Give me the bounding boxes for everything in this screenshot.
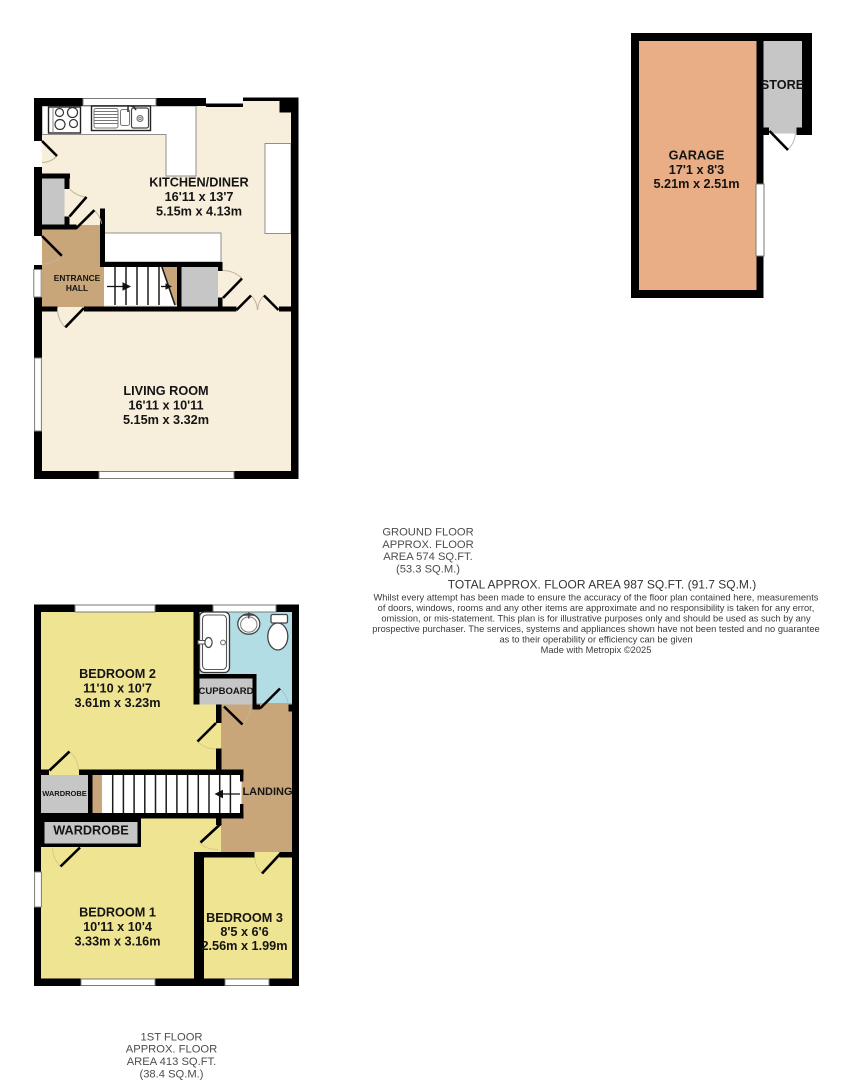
svg-text:Made with Metropix ©2025: Made with Metropix ©2025 [541,645,652,655]
svg-text:2.56m x 1.99m: 2.56m x 1.99m [201,939,287,953]
svg-text:Whilst every attempt has been: Whilst every attempt has been made to en… [374,593,819,603]
svg-text:APPROX. FLOOR: APPROX. FLOOR [382,539,473,551]
svg-text:LANDING: LANDING [242,786,292,798]
svg-text:of doors, windows, rooms and a: of doors, windows, rooms and any other i… [378,603,815,613]
svg-text:CUPBOARD: CUPBOARD [199,686,254,697]
svg-text:KITCHEN/DINER: KITCHEN/DINER [149,176,248,190]
svg-text:prospective purchaser. The ser: prospective purchaser. The services, sys… [372,624,819,634]
svg-text:WARDROBE: WARDROBE [53,824,128,838]
svg-text:ENTRANCE: ENTRANCE [54,273,101,283]
svg-text:BEDROOM 2: BEDROOM 2 [79,667,156,681]
svg-text:HALL: HALL [66,283,88,293]
svg-text:AREA 574 SQ.FT.: AREA 574 SQ.FT. [383,551,473,563]
svg-text:1ST FLOOR: 1ST FLOOR [141,1031,203,1043]
svg-text:16'11 x 10'11: 16'11 x 10'11 [128,399,203,413]
svg-text:WARDROBE: WARDROBE [42,789,87,798]
svg-text:(53.3 SQ.M.): (53.3 SQ.M.) [396,563,460,575]
svg-text:BEDROOM 3: BEDROOM 3 [206,911,283,925]
svg-text:11'10 x 10'7: 11'10 x 10'7 [83,682,152,696]
svg-text:16'11 x 13'7: 16'11 x 13'7 [165,190,234,204]
svg-text:STORE: STORE [761,78,804,92]
svg-text:LIVING ROOM: LIVING ROOM [123,384,208,398]
svg-text:8'5 x 6'6: 8'5 x 6'6 [220,925,268,939]
svg-text:BEDROOM 1: BEDROOM 1 [79,906,156,920]
svg-text:TOTAL APPROX. FLOOR AREA 987 S: TOTAL APPROX. FLOOR AREA 987 SQ.FT. (91.… [448,578,757,592]
svg-text:5.21m x 2.51m: 5.21m x 2.51m [653,177,739,191]
svg-text:APPROX. FLOOR: APPROX. FLOOR [126,1044,217,1056]
svg-text:5.15m x 3.32m: 5.15m x 3.32m [123,413,209,427]
svg-text:AREA 413 SQ.FT.: AREA 413 SQ.FT. [127,1056,217,1068]
svg-text:5.15m x 4.13m: 5.15m x 4.13m [156,205,242,219]
svg-text:17'1 x 8'3: 17'1 x 8'3 [669,163,724,177]
svg-text:10'11 x 10'4: 10'11 x 10'4 [83,920,152,934]
svg-text:3.61m x 3.23m: 3.61m x 3.23m [74,696,160,710]
svg-text:GROUND FLOOR: GROUND FLOOR [382,527,473,539]
svg-text:omission, or mis-statement. Th: omission, or mis-statement. This plan is… [381,614,811,624]
svg-text:as to their operability or eff: as to their operability or efficiency ca… [499,635,692,645]
svg-text:GARAGE: GARAGE [669,149,725,163]
svg-text:3.33m x 3.16m: 3.33m x 3.16m [74,935,160,949]
svg-text:(38.4 SQ.M.): (38.4 SQ.M.) [139,1069,203,1080]
